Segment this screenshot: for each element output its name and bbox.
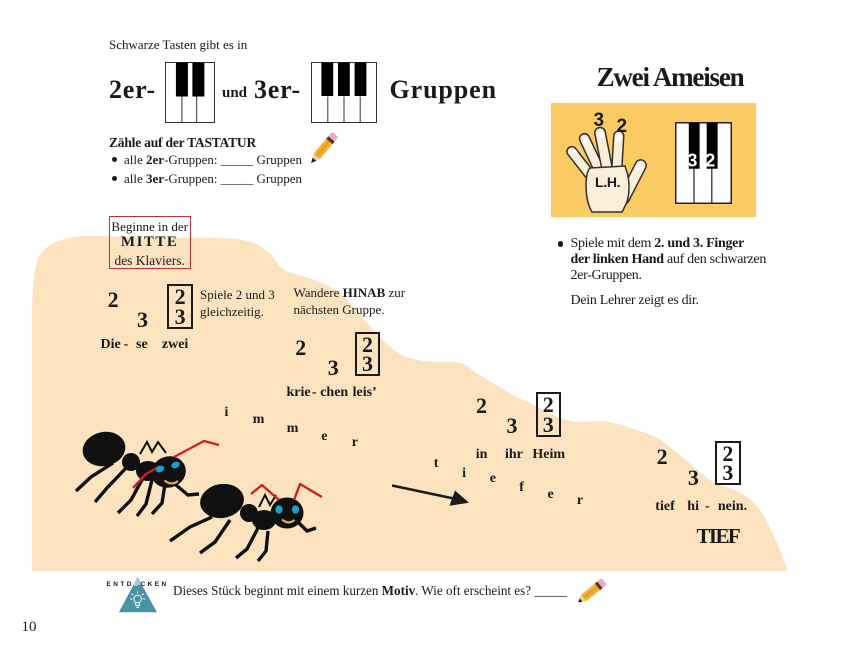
svg-text:3: 3 [687,150,697,170]
svg-text:2: 2 [705,150,715,170]
